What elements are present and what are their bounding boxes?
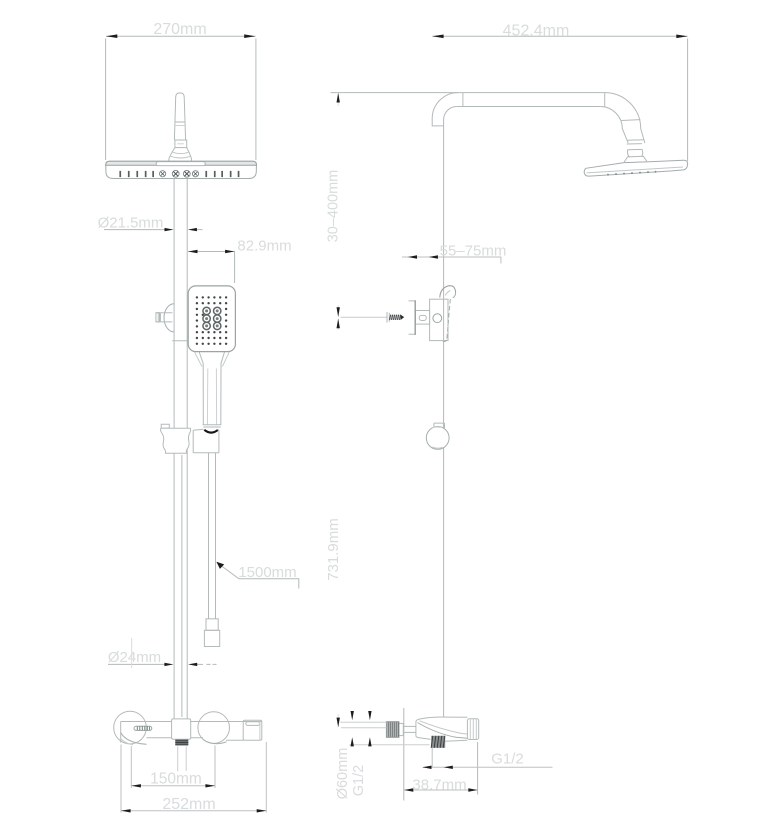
svg-text:55–75mm: 55–75mm — [440, 243, 507, 260]
svg-text:G1/2: G1/2 — [491, 751, 524, 768]
svg-text:252mm: 252mm — [162, 796, 215, 813]
svg-text:731.9mm: 731.9mm — [325, 518, 342, 581]
svg-text:Ø21.5mm: Ø21.5mm — [98, 215, 164, 232]
svg-text:30–400mm: 30–400mm — [326, 170, 342, 243]
svg-text:150mm: 150mm — [150, 771, 202, 788]
svg-text:452.4mm: 452.4mm — [503, 23, 570, 40]
svg-text:G1/2: G1/2 — [351, 765, 367, 796]
svg-text:38.7mm: 38.7mm — [412, 777, 466, 794]
svg-text:Ø60mm: Ø60mm — [335, 748, 351, 800]
svg-text:Ø24mm: Ø24mm — [108, 649, 161, 666]
svg-text:1500mm: 1500mm — [238, 564, 296, 581]
svg-text:270mm: 270mm — [153, 21, 206, 38]
svg-text:82.9mm: 82.9mm — [237, 238, 291, 255]
